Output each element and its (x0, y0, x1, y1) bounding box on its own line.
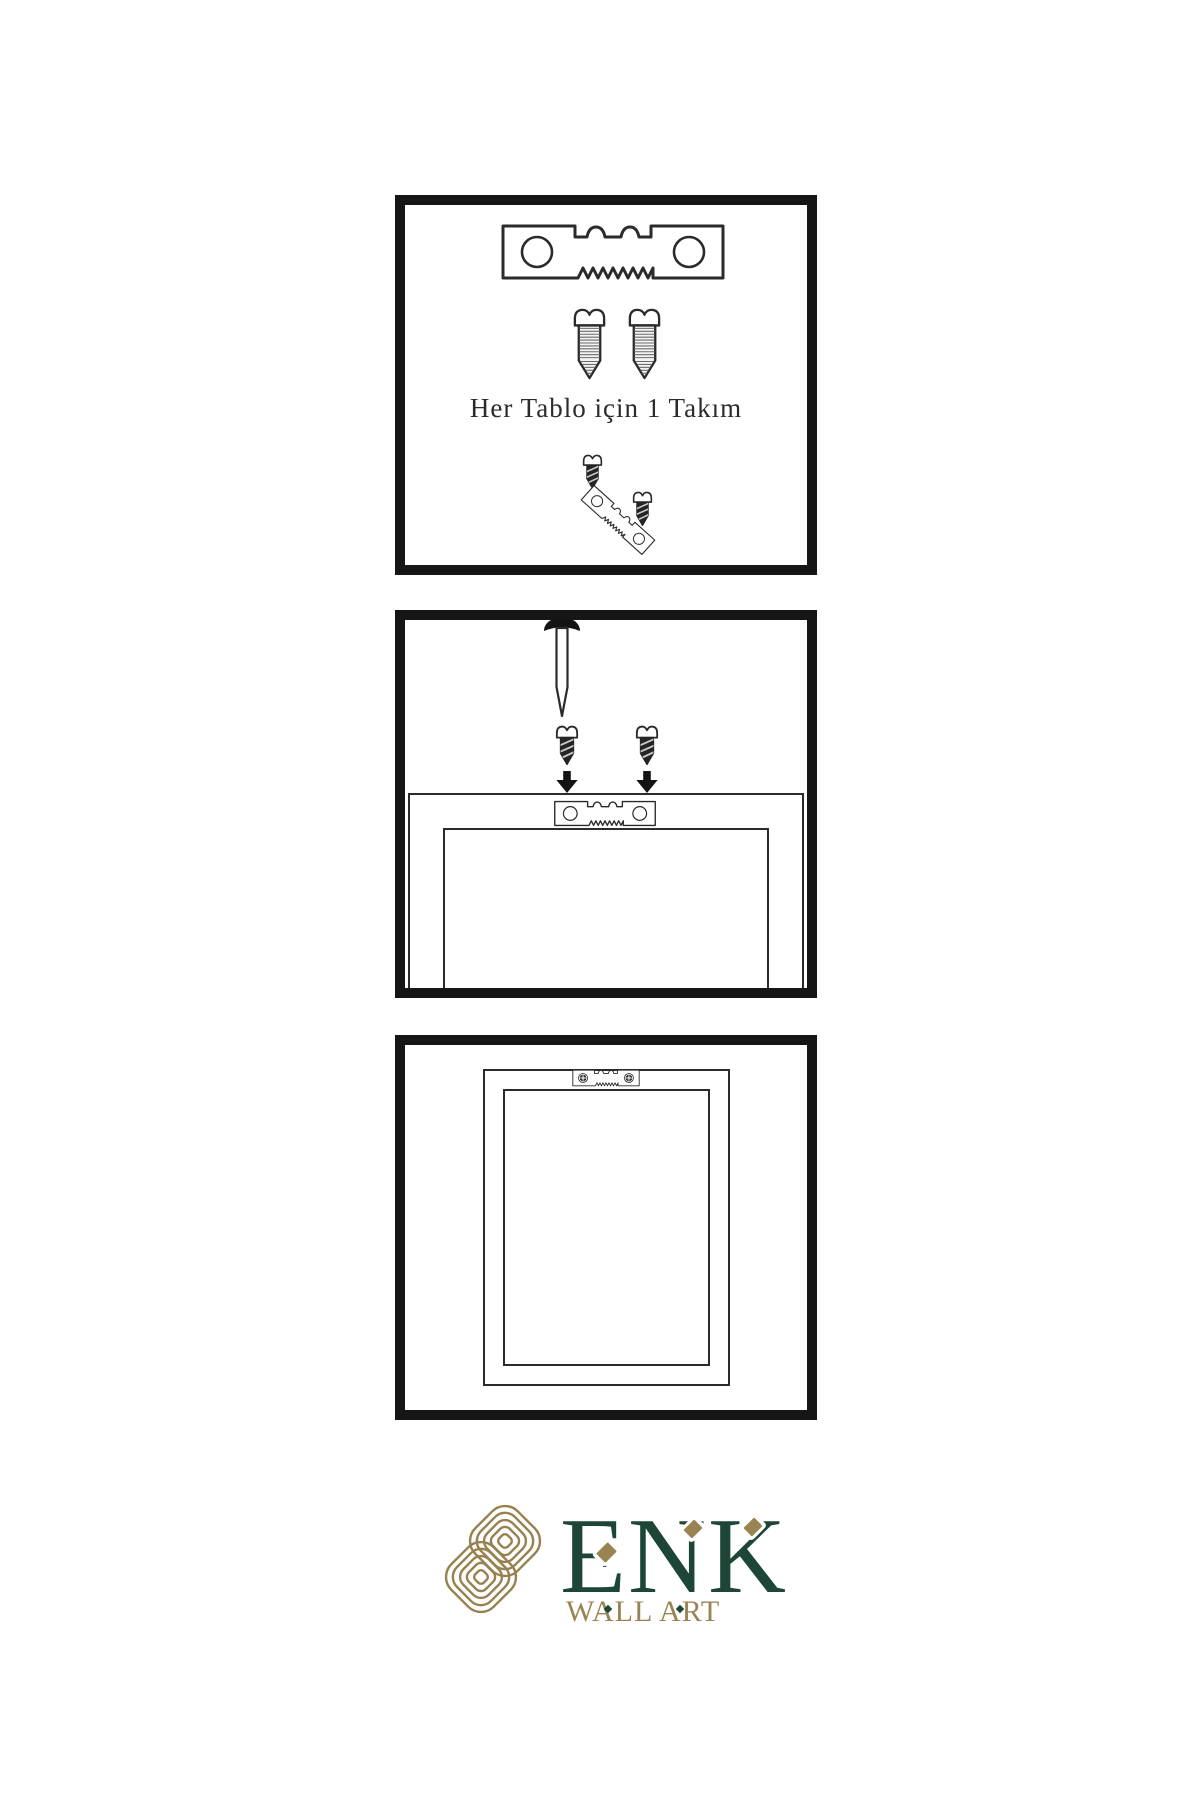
panel-mount-hanger (395, 610, 817, 998)
instruction-sheet: Her Tablo için 1 Takım (0, 0, 1200, 1800)
sawtooth-hanger-icon (497, 223, 729, 281)
kit-caption: Her Tablo için 1 Takım (405, 393, 807, 424)
screw-icon (635, 723, 659, 767)
down-arrow-icon (636, 771, 658, 793)
nail-icon (542, 615, 582, 719)
frame-front-inner (503, 1089, 710, 1366)
screw-icon (555, 723, 579, 767)
panel-hardware-kit: Her Tablo için 1 Takım (395, 195, 817, 575)
frame-back-inner (443, 828, 769, 998)
down-arrow-icon (556, 771, 578, 793)
small-screw-icon (632, 490, 653, 527)
knot-emblem-icon (433, 1493, 553, 1625)
screw-icon (626, 305, 663, 381)
screw-icon (571, 305, 608, 381)
sawtooth-hanger-screwed-icon (571, 1069, 641, 1087)
panel-hang-frame (395, 1035, 817, 1420)
brand-subtitle: WALL ART (566, 1597, 720, 1627)
sawtooth-hanger-icon (552, 800, 658, 827)
